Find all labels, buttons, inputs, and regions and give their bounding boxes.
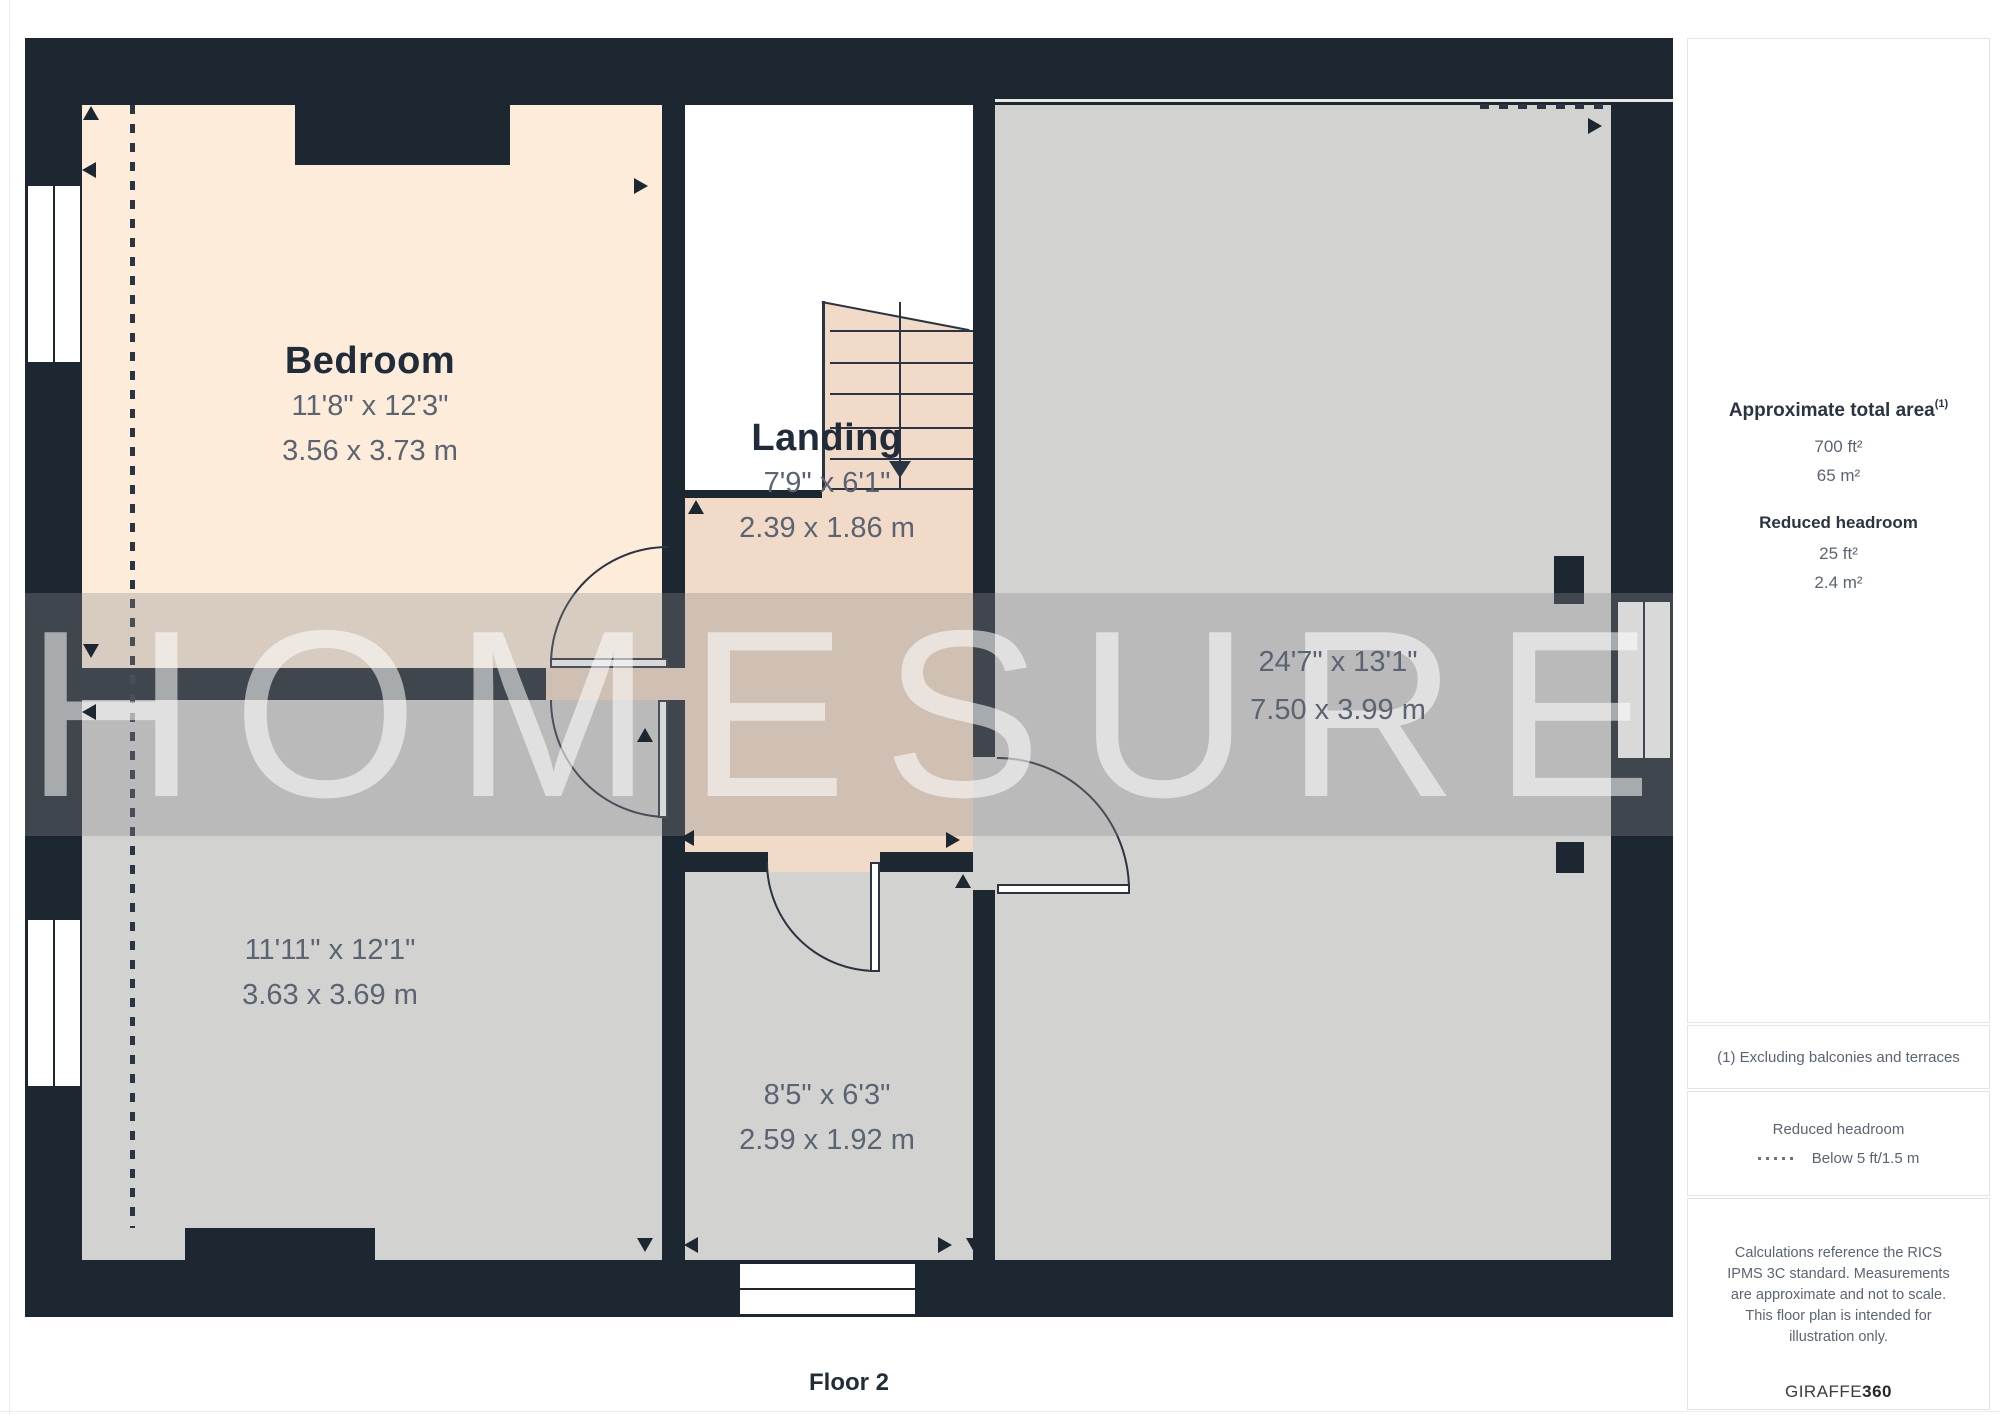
dimension-arrow	[82, 704, 96, 720]
legend-title: Reduced headroom	[1773, 1121, 1905, 1138]
room-dimensions-ft: 11'11" x 12'1"	[130, 928, 530, 973]
wall-hairline	[995, 99, 1673, 102]
dimension-arrow	[946, 832, 960, 848]
legend-entry: Below 5 ft/1.5 m	[1758, 1150, 1920, 1167]
room-name: Landing	[677, 415, 977, 461]
total-area-heading: Approximate total area(1)	[1688, 391, 1989, 424]
reduced-headroom-ft: 25 ft²	[1688, 539, 1989, 568]
page-frame-left	[9, 0, 10, 1415]
door-leaf	[997, 884, 1130, 894]
floor-plan: HOMESURE Bedroom 11'8" x 12'3" 3.56 x 3.…	[25, 38, 1673, 1317]
window-mullion	[53, 186, 55, 362]
room-name: Bedroom	[170, 338, 570, 384]
dimension-arrow	[938, 1237, 952, 1253]
footnote-text: (1) Excluding balconies and terraces	[1717, 1049, 1960, 1066]
room-dimensions-m: 2.39 x 1.86 m	[677, 506, 977, 551]
door-leaf	[870, 862, 880, 972]
disclaimer-text: Calculations reference the RICS IPMS 3C …	[1719, 1243, 1959, 1348]
window-mullion	[740, 1288, 915, 1290]
legend-entry-text: Below 5 ft/1.5 m	[1812, 1150, 1920, 1167]
room-label-landing: Landing 7'9" x 6'1" 2.39 x 1.86 m	[677, 415, 977, 551]
page-frame-bottom	[0, 1411, 2000, 1412]
room-dimensions-ft: 8'5" x 6'3"	[677, 1073, 977, 1118]
flue-box	[1556, 842, 1584, 873]
reduced-headroom-line	[1480, 104, 1611, 109]
dimension-arrow	[637, 1238, 653, 1252]
dashed-line-icon	[1758, 1157, 1798, 1160]
wall-step	[185, 1228, 375, 1260]
reduced-headroom-heading: Reduced headroom	[1688, 510, 1989, 536]
dimension-arrow	[82, 162, 96, 178]
window	[26, 918, 82, 1088]
dimension-arrow	[634, 178, 648, 194]
window-mullion	[53, 920, 55, 1086]
dimension-arrow	[966, 1238, 982, 1252]
reduced-headroom-m: 2.4 m²	[1688, 568, 1989, 597]
stair-tread	[830, 330, 973, 332]
room-dimensions-m: 3.56 x 3.73 m	[170, 429, 570, 474]
stair-tread	[830, 362, 973, 364]
dimension-arrow	[680, 830, 694, 846]
room-dimensions-m: 2.59 x 1.92 m	[677, 1118, 977, 1163]
room-dimensions-m: 7.50 x 3.99 m	[1138, 686, 1538, 734]
total-area-ft: 700 ft²	[1688, 432, 1989, 461]
total-area-m: 65 m²	[1688, 461, 1989, 490]
brand-suffix: 360	[1862, 1382, 1892, 1401]
room-dimensions-ft: 11'8" x 12'3"	[170, 384, 570, 429]
room-label-bottom-left: 11'11" x 12'1" 3.63 x 3.69 m	[130, 928, 530, 1018]
window	[26, 184, 82, 364]
dimension-arrow	[83, 106, 99, 120]
dimension-arrow	[684, 1237, 698, 1253]
floor-label: Floor 2	[25, 1369, 1673, 1397]
brand-name: GIRAFFE	[1785, 1382, 1862, 1401]
total-area-label: Approximate total area	[1729, 400, 1935, 421]
dimension-arrow	[637, 728, 653, 742]
stair-tread	[830, 393, 973, 395]
sidebar-disclaimer-panel: Calculations reference the RICS IPMS 3C …	[1687, 1198, 1990, 1410]
room-dimensions-ft: 7'9" x 6'1"	[677, 461, 977, 506]
room-label-bedroom: Bedroom 11'8" x 12'3" 3.56 x 3.73 m	[170, 338, 570, 474]
window	[738, 1262, 917, 1316]
room-label-bottom-center: 8'5" x 6'3" 2.59 x 1.92 m	[677, 1073, 977, 1163]
room-label-right: 24'7" x 13'1" 7.50 x 3.99 m	[1138, 638, 1538, 734]
sidebar-footnote-panel: (1) Excluding balconies and terraces	[1687, 1025, 1990, 1089]
footnote-marker: (1)	[1935, 398, 1948, 410]
chimney-breast	[295, 105, 510, 165]
dimension-arrow	[955, 874, 971, 888]
sidebar-summary-panel: Approximate total area(1) 700 ft² 65 m² …	[1687, 38, 1990, 1023]
room-dimensions-m: 3.63 x 3.69 m	[130, 973, 530, 1018]
brand-logo: GIRAFFE360	[1688, 1382, 1989, 1402]
dimension-arrow	[1588, 118, 1602, 134]
sidebar-legend-panel: Reduced headroom Below 5 ft/1.5 m	[1687, 1091, 1990, 1196]
room-dimensions-ft: 24'7" x 13'1"	[1138, 638, 1538, 686]
dimension-arrow	[83, 644, 99, 658]
